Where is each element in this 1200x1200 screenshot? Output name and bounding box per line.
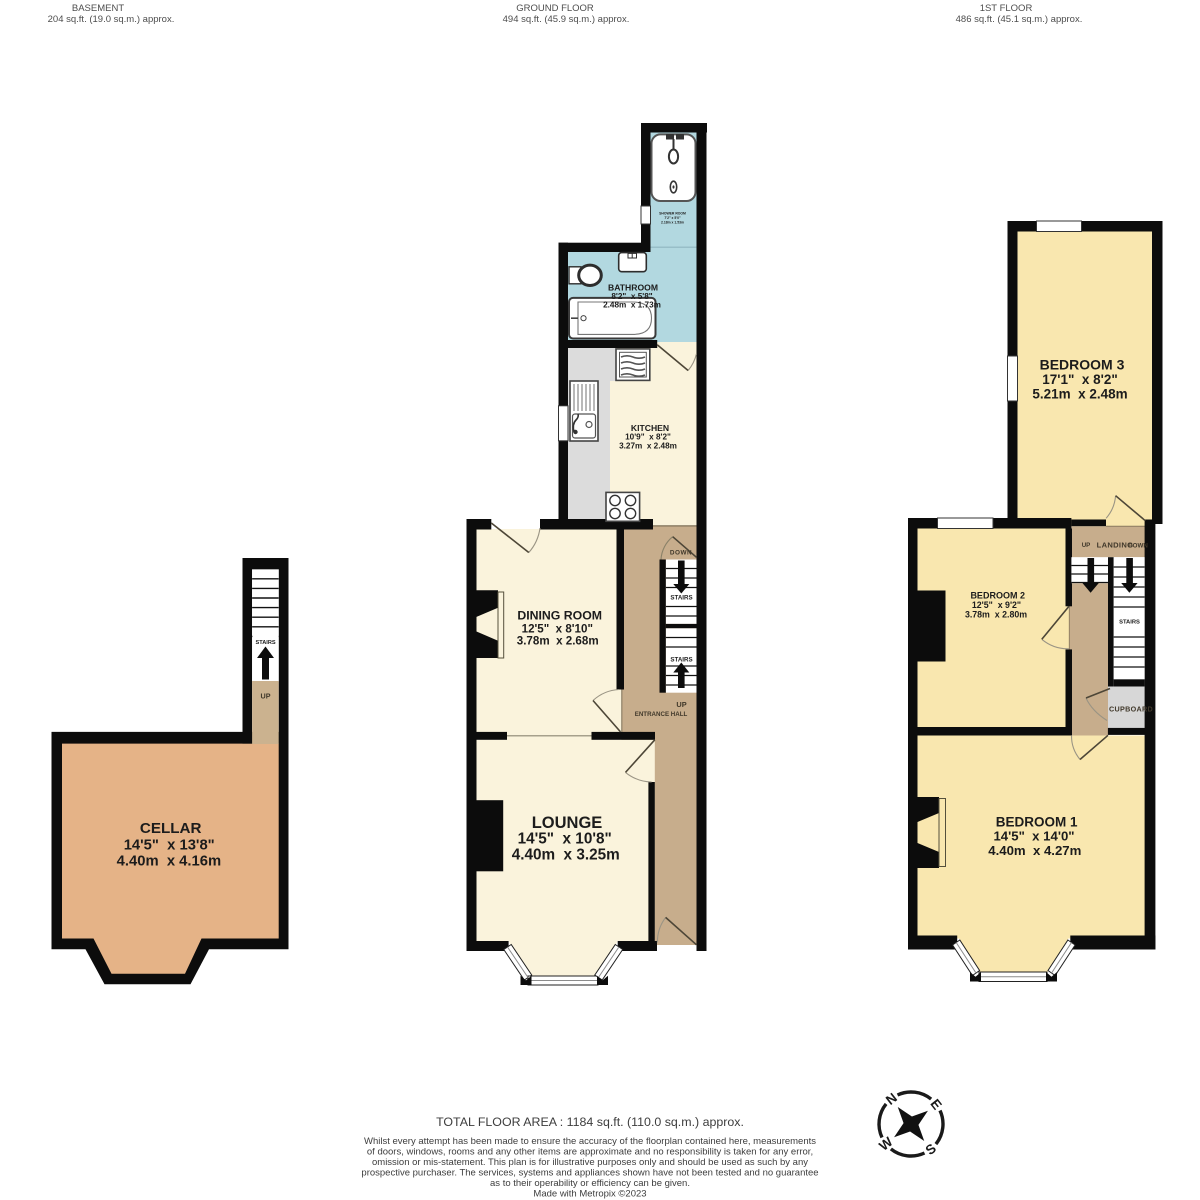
svg-text:17'1" x 8'2": 17'1" x 8'2" [1042,372,1118,387]
svg-text:4.40m x 4.16m: 4.40m x 4.16m [117,854,221,870]
svg-text:3.27m x 2.48m: 3.27m x 2.48m [619,441,677,450]
svg-text:UP: UP [261,692,271,701]
svg-text:of doors, windows, rooms and a: of doors, windows, rooms and any other i… [367,1147,813,1158]
svg-text:LANDING: LANDING [1097,541,1134,550]
svg-text:DINING ROOM: DINING ROOM [517,609,602,623]
svg-text:omission or mis-statement. Thi: omission or mis-statement. This plan is … [372,1157,808,1168]
svg-text:STAIRS: STAIRS [256,640,276,646]
svg-text:494 sq.ft. (45.9 sq.m.) approx: 494 sq.ft. (45.9 sq.m.) approx. [503,14,630,25]
svg-text:BEDROOM 3: BEDROOM 3 [1040,356,1125,372]
svg-text:14'5" x 13'8": 14'5" x 13'8" [124,837,215,853]
svg-text:UP: UP [676,700,686,709]
svg-text:BASEMENT: BASEMENT [72,3,124,14]
svg-text:STAIRS: STAIRS [670,657,692,664]
svg-text:Made with Metropix ©2023: Made with Metropix ©2023 [533,1189,646,1200]
svg-text:TOTAL FLOOR AREA : 1184 sq.ft.: TOTAL FLOOR AREA : 1184 sq.ft. (110.0 sq… [436,1115,744,1129]
svg-text:BEDROOM 2: BEDROOM 2 [970,591,1025,601]
svg-text:KITCHEN: KITCHEN [631,423,669,433]
svg-text:as to their operability or eff: as to their operability or efficiency ca… [490,1178,690,1189]
svg-text:GROUND FLOOR: GROUND FLOOR [516,3,594,14]
svg-text:SHOWER ROOM: SHOWER ROOM [659,212,686,216]
svg-text:1ST FLOOR: 1ST FLOOR [980,3,1033,14]
svg-text:BATHROOM: BATHROOM [608,283,658,293]
svg-text:14'5" x 10'8": 14'5" x 10'8" [518,831,612,848]
svg-text:3.78m x 2.68m: 3.78m x 2.68m [517,634,599,647]
svg-text:Whilst every attempt has been: Whilst every attempt has been made to en… [364,1136,816,1147]
svg-text:12'5" x 9'2": 12'5" x 9'2" [972,600,1021,610]
svg-text:CELLAR: CELLAR [140,820,202,837]
svg-text:prospective purchaser. The ser: prospective purchaser. The services, sys… [361,1168,818,1179]
svg-text:2.18m x 1.53m: 2.18m x 1.53m [661,221,684,225]
svg-text:204 sq.ft. (19.0 sq.m.) approx: 204 sq.ft. (19.0 sq.m.) approx. [48,14,175,25]
svg-text:CUPBOARD: CUPBOARD [1109,705,1153,714]
svg-text:4.40m x 4.27m: 4.40m x 4.27m [988,843,1081,858]
svg-text:LOUNGE: LOUNGE [532,814,603,832]
svg-text:DOWN: DOWN [670,550,692,557]
svg-text:5.21m x 2.48m: 5.21m x 2.48m [1032,386,1127,401]
svg-text:UP: UP [1082,542,1091,549]
svg-text:7'2" x 5'0": 7'2" x 5'0" [664,216,681,220]
svg-text:14'5" x 14'0": 14'5" x 14'0" [993,829,1074,844]
svg-text:ENTRANCE HALL: ENTRANCE HALL [635,711,688,718]
svg-text:3.78m x 2.80m: 3.78m x 2.80m [965,610,1027,620]
svg-text:486 sq.ft. (45.1 sq.m.) approx: 486 sq.ft. (45.1 sq.m.) approx. [956,14,1083,25]
svg-text:10'9" x 8'2": 10'9" x 8'2" [625,433,671,442]
svg-text:STAIRS: STAIRS [670,595,692,602]
svg-text:BEDROOM 1: BEDROOM 1 [996,814,1078,829]
svg-text:STAIRS: STAIRS [1119,620,1140,626]
svg-text:2.48m x 1.73m: 2.48m x 1.73m [603,301,661,310]
svg-text:4.40m x 3.25m: 4.40m x 3.25m [512,846,620,863]
